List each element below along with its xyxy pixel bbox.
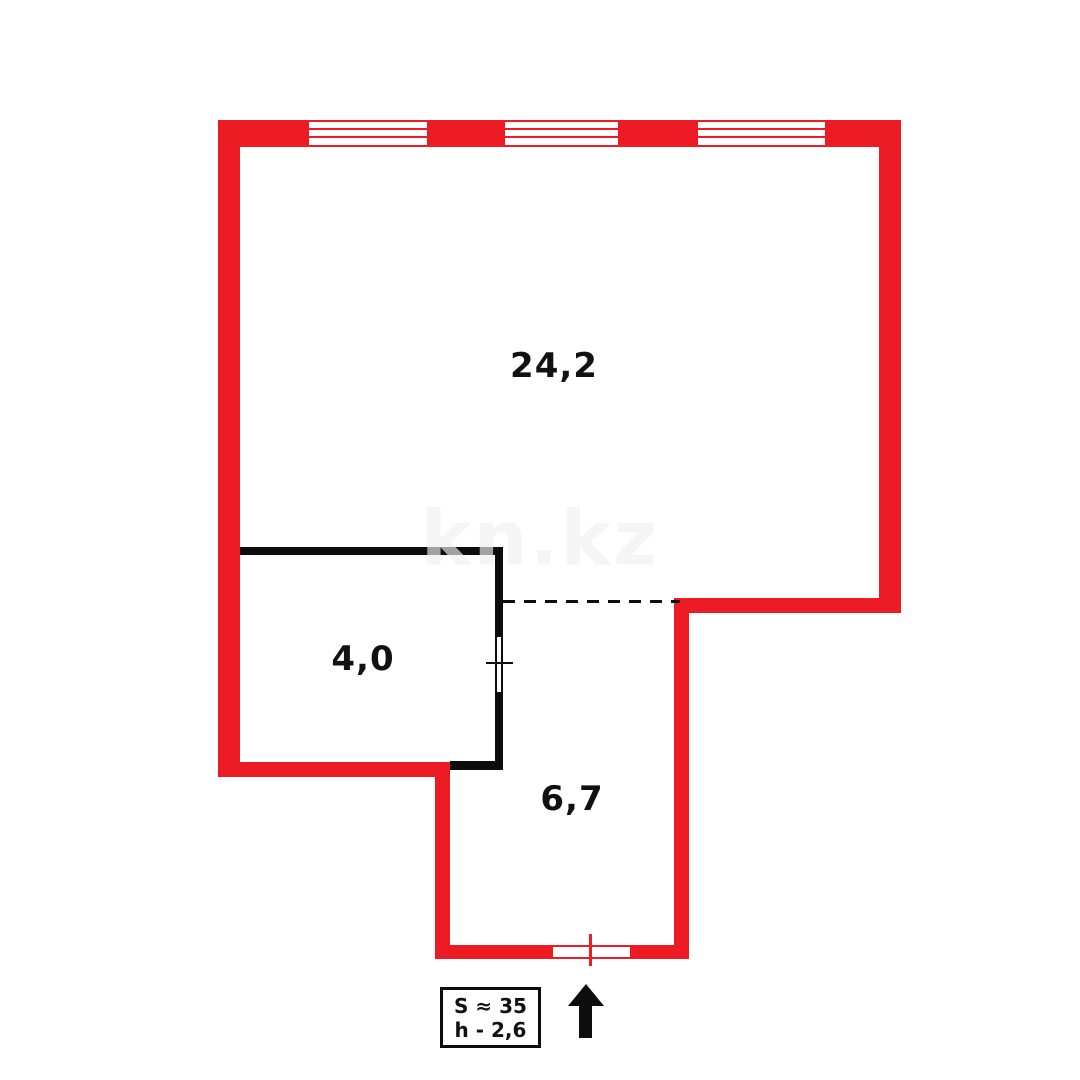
window-glazing-line: [309, 136, 427, 138]
window-icon: [696, 120, 827, 147]
window-glazing-line: [698, 128, 825, 130]
wall-left: [218, 120, 240, 777]
arrow-head: [568, 984, 604, 1006]
entrance-arrow-icon: [567, 984, 604, 1038]
watermark: kn.kz: [421, 494, 659, 583]
legend-total-area: S ≈ 35: [454, 994, 527, 1018]
wall-step-right: [674, 598, 901, 613]
partition-storage-bottom: [450, 761, 503, 770]
wall-step-left: [218, 762, 450, 777]
window-glazing-line: [698, 136, 825, 138]
legend-ceiling-height: h - 2,6: [455, 1018, 527, 1042]
wall-hallway-right: [674, 598, 689, 959]
wall-hallway-left: [435, 762, 450, 959]
room-opening-dashed-line: [503, 600, 680, 603]
room-area-label-hallway: 6,7: [540, 779, 603, 819]
window-icon: [307, 120, 429, 147]
window-glazing-line: [309, 128, 427, 130]
room-area-label-storage: 4,0: [331, 639, 394, 679]
partition-storage-right: [495, 692, 503, 770]
window-glazing-line: [505, 128, 618, 130]
window-glazing-line: [505, 136, 618, 138]
interior-door-tick: [486, 662, 513, 664]
window-icon: [503, 120, 620, 147]
interior-door-icon: [495, 637, 503, 692]
wall-right: [879, 120, 901, 613]
arrow-stem: [579, 1006, 592, 1038]
entrance-door-tick: [589, 934, 592, 966]
floor-plan: 24,2 4,0 6,7 S ≈ 35 h - 2,6 kn.kz: [0, 0, 1080, 1080]
room-area-label-living: 24,2: [510, 346, 598, 386]
legend-box: S ≈ 35 h - 2,6: [440, 987, 541, 1048]
